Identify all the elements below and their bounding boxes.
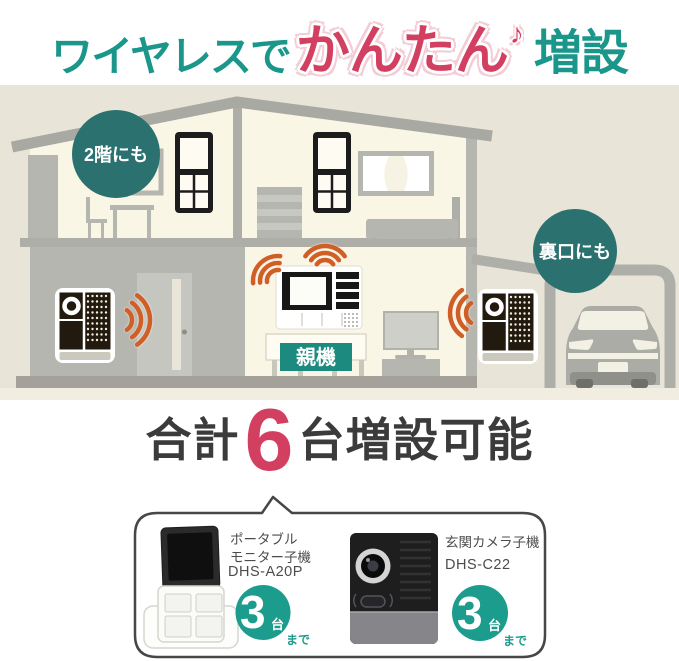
license-plate [598,362,628,373]
center-wall [233,107,242,238]
monitor-count-unit: 台 [271,618,284,631]
floor-divider [20,238,477,247]
floor2-badge: 2階にも [72,110,160,198]
monitor-unit-2f-left [175,132,213,213]
monitor-count: 3 [240,589,266,635]
foundation [16,376,477,388]
front-door [137,273,192,376]
front-door-camera [55,288,115,363]
door-knob [182,330,187,335]
backdoor-badge: 裏口にも [533,209,617,293]
title-expand: 増設 [534,30,628,78]
curtain-window [358,151,434,196]
house-illustration: 親機 2階にも 裏口にも [0,85,679,400]
title-easy: かんたん [296,24,508,78]
main-unit-label: 親機 [280,343,352,371]
camera-speaker [361,596,385,607]
music-note-icon: ♪ [510,20,524,48]
camera-count-suffix: まで [503,635,527,647]
camera-count: 3 [457,590,483,636]
backdoor-badge-text: 裏口にも [538,241,611,262]
monitor-product-name: ポータブル モニター子機 [230,531,311,567]
dresser [257,187,302,238]
main-unit [276,266,362,329]
tv [382,312,440,376]
camera-count-unit: 台 [488,619,501,632]
camera-product-model: DHS-C22 [445,557,511,573]
main-unit-label-text: 親機 [296,346,336,369]
products-bubble-svg [0,400,679,661]
monitor-screen [167,532,214,581]
ground-strip [0,388,679,400]
camera-product-image [350,533,438,644]
floor2-badge-text: 2階にも [84,145,148,165]
title-wireless: ワイヤレスで [51,36,290,78]
monitor-count-suffix: まで [286,634,310,646]
monitor-unit-2f-right [313,132,351,213]
closet-wall [28,155,58,238]
car-windshield [578,311,648,330]
promo-poster: ワイヤレスで かんたん ♪ 増設 [0,0,679,661]
camera-product-name: 玄関カメラ子機 [445,534,540,552]
monitor-product-model: DHS-A20P [228,564,303,580]
house-illustration-svg: 親機 2階にも 裏口にも [0,85,679,400]
car [566,306,660,388]
back-door-camera [478,289,538,364]
main-unit-screen [290,277,326,305]
page-title: ワイヤレスで かんたん ♪ 増設 [0,0,679,86]
camera-bottom-band [350,612,438,644]
